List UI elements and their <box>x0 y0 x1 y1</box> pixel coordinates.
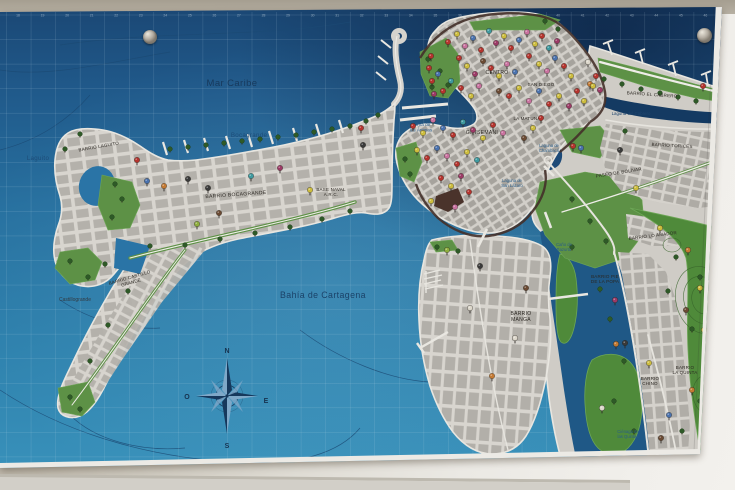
grid-number: 33 <box>384 13 388 17</box>
compass-o: O <box>184 394 190 401</box>
islet-big <box>585 354 642 454</box>
label-san-diego: SAN DIEGO <box>528 82 555 87</box>
mount-pin-right-icon <box>697 28 712 43</box>
label-bahia-cartagena: Bahía de Cartagena <box>280 290 366 300</box>
tree-icon <box>716 423 721 429</box>
grid-number: 19 <box>41 13 45 17</box>
grid-number: 45 <box>679 13 683 17</box>
compass-s: S <box>225 443 230 450</box>
grid-number: 24 <box>163 13 167 17</box>
label-laguito: Laguito <box>27 155 50 162</box>
city-map-graphic: 1819202122232425262728293031323334353637… <box>0 0 735 490</box>
grid-number: 44 <box>654 13 658 17</box>
label-barrio-la-quinta: BARRIOLA QUINTA <box>673 365 698 375</box>
grid-number: 41 <box>581 13 585 17</box>
grid-number: 31 <box>335 13 339 17</box>
label-cano-bazurto: Caño deBazurto <box>556 242 573 252</box>
label-laguna-chambacu: Laguna deChambacú <box>539 143 560 153</box>
grid-number: 22 <box>114 13 118 17</box>
grid-number: 35 <box>433 13 437 17</box>
grid-number: 26 <box>213 13 217 17</box>
tree-icon <box>714 297 719 303</box>
tree-icon <box>710 357 715 363</box>
label-barrio-manga: BARRIOMANGA <box>511 311 532 323</box>
grid-number: 28 <box>262 13 266 17</box>
grid-number: 29 <box>286 13 290 17</box>
map-print-wrap: 1819202122232425262728293031323334353637… <box>0 0 735 490</box>
grid-number: 32 <box>360 13 364 17</box>
grid-number: 23 <box>139 13 143 17</box>
photo-of-wall-mounted-map: 1819202122232425262728293031323334353637… <box>0 0 735 490</box>
grid-number: 20 <box>65 13 69 17</box>
label-la-matuna: LA MATUNA <box>514 116 541 121</box>
label-barrio-chino: BARRIOCHINO <box>641 376 660 386</box>
grid-number: 46 <box>704 13 708 17</box>
mount-pin-left-icon <box>143 30 157 44</box>
label-bocagrande-sea: Bocagrande <box>231 132 268 139</box>
label-mar-caribe: Mar Caribe <box>207 78 258 89</box>
grid-number: 27 <box>237 13 241 17</box>
compass-n: N <box>224 348 229 355</box>
grid-number: 18 <box>16 13 20 17</box>
label-cienaga-quintas: Ciénaga delas Quintas <box>617 429 639 439</box>
tree-icon <box>720 241 725 247</box>
grid-number: 30 <box>311 13 315 17</box>
label-laguna-cabrero: Laguna del Cabrero <box>612 111 651 116</box>
label-castillogrande: Castillogrande <box>59 297 91 303</box>
grid-number: 25 <box>188 13 192 17</box>
label-laguna-san-lazaro: Laguna deSan Lázaro <box>501 178 523 188</box>
grid-number: 40 <box>556 13 560 17</box>
grid-number: 43 <box>630 13 634 17</box>
grid-number: 42 <box>605 13 609 17</box>
compass-e: E <box>264 398 269 405</box>
grid-number: 21 <box>90 13 94 17</box>
label-barrio-pie-popa: BARRIO PIEDE LA POPA <box>591 274 619 284</box>
map-print: 1819202122232425262728293031323334353637… <box>0 0 735 490</box>
grid-number: 34 <box>409 13 413 17</box>
